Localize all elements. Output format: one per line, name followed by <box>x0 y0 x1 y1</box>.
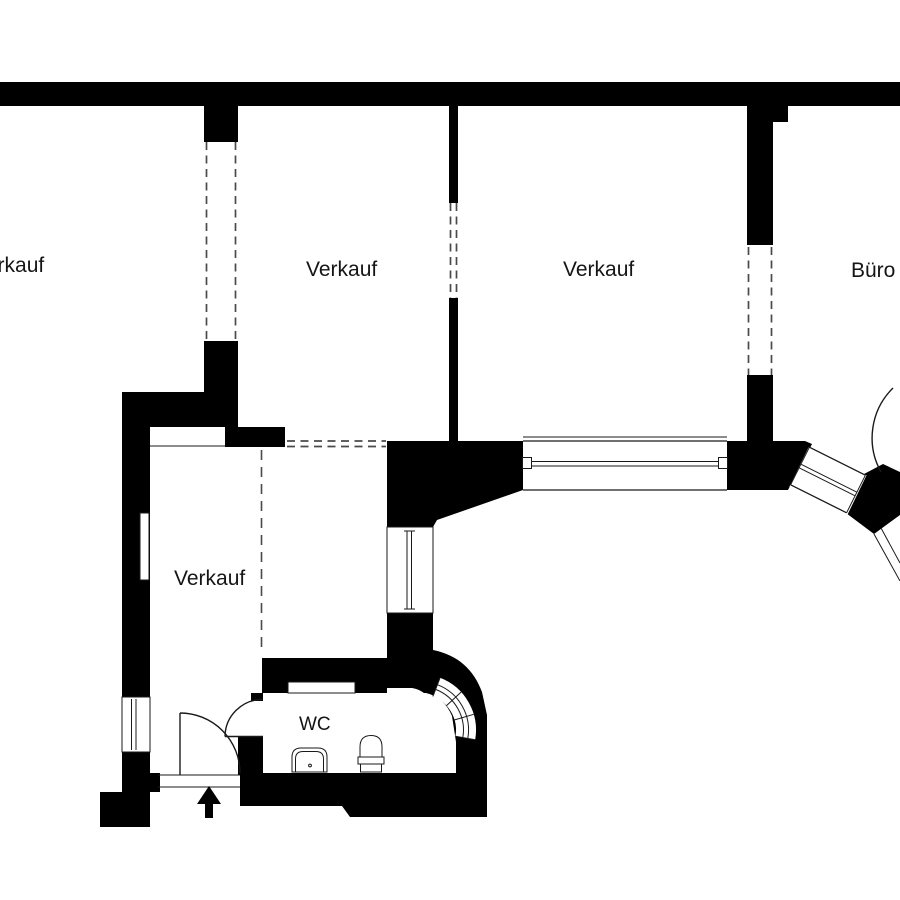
toilet-bowl <box>360 736 382 758</box>
wall-divider2-top <box>449 106 458 203</box>
room-label-verkauf-left: Verkauf <box>0 254 44 277</box>
sink-drain <box>309 764 312 767</box>
floor-plan: Verkauf Verkauf Verkauf Büro Verkauf WC <box>0 0 900 900</box>
room-label-verkauf-mid: Verkauf <box>306 258 377 281</box>
toilet-cistern <box>361 764 382 772</box>
bay-lower-wall-lines <box>874 528 900 581</box>
toilet-seat <box>358 757 384 764</box>
bay-wall-line <box>881 528 900 563</box>
wc-wall-niche <box>288 682 355 693</box>
room-label-wc: WC <box>299 714 331 735</box>
window-post <box>719 458 728 469</box>
room-label-buero: Büro <box>851 259 895 282</box>
wall-top <box>0 82 900 106</box>
wall-niche <box>140 513 149 580</box>
wall-buero-west-bottom <box>747 375 773 441</box>
bay-window-opening <box>799 467 857 495</box>
door-swing-arc <box>180 713 240 773</box>
entrance-arrow-icon <box>197 786 221 818</box>
window-west <box>122 697 150 752</box>
wall-south-band-left <box>225 427 285 447</box>
toilet-icon <box>358 736 384 773</box>
room-label-verkauf-bottom: Verkauf <box>174 567 245 590</box>
wall-divider2-bottom <box>449 298 458 441</box>
wall-southwest-chunk <box>387 441 523 527</box>
window-south-large <box>523 437 728 490</box>
door-swing-arc <box>225 700 263 737</box>
sink-basin <box>296 752 324 773</box>
wall-buero-west-top <box>747 106 788 245</box>
window-east-vertical <box>387 527 433 613</box>
bay-door-swing-arc <box>872 388 893 472</box>
wall-divider1-top-stub <box>204 106 238 142</box>
window-post <box>523 458 532 469</box>
sink-icon <box>292 748 327 772</box>
window-opening <box>387 527 433 613</box>
wall-bottom-band <box>240 773 487 817</box>
wc-door <box>225 700 263 737</box>
wall-vestibule-right <box>238 737 263 775</box>
room-label-verkauf-right: Verkauf <box>563 258 634 281</box>
wall-entrance-left-jamb <box>150 773 160 792</box>
wall-left-foot <box>100 792 150 827</box>
floor-plan-drawing: Verkauf Verkauf Verkauf Büro Verkauf WC <box>0 0 900 900</box>
bay-wall-line <box>874 534 900 581</box>
